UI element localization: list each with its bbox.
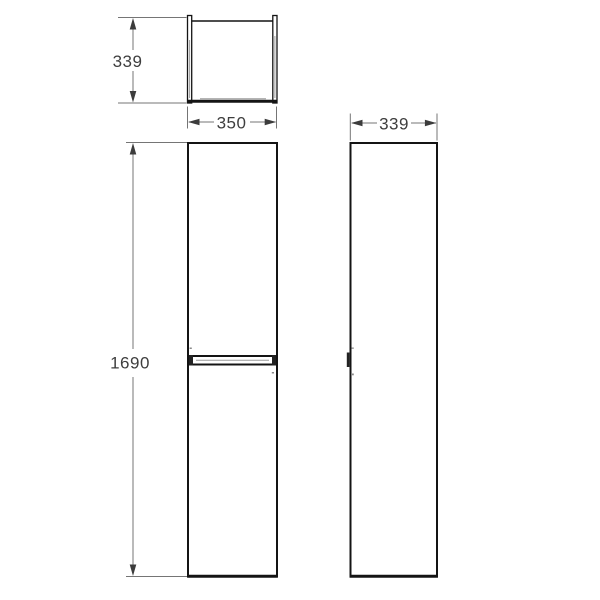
front-view-groove-cap-left xyxy=(189,355,193,366)
dim-width: 350 xyxy=(188,107,277,133)
side-view-handle-profile xyxy=(347,353,350,368)
drawing-page: 339 350 1690 xyxy=(0,0,600,600)
side-view-hinge-mark-upper xyxy=(352,348,354,349)
dim-label-top-depth: 339 xyxy=(113,52,143,71)
dim-label-front-height: 1690 xyxy=(110,354,150,373)
dim-height: 1690 xyxy=(110,143,187,577)
side-view xyxy=(347,143,438,577)
arrow-up-icon xyxy=(130,18,137,30)
front-view-hinge-mark-upper xyxy=(190,348,192,350)
arrow-down-icon xyxy=(130,91,137,103)
front-view xyxy=(187,143,277,577)
dim-top-depth: 339 xyxy=(113,18,187,104)
arrow-up-icon xyxy=(130,143,137,155)
side-view-body xyxy=(351,143,438,577)
side-view-hinge-mark-lower xyxy=(352,374,354,376)
front-view-groove-cap-right xyxy=(272,355,276,366)
arrow-right-icon xyxy=(425,120,437,127)
top-view xyxy=(187,16,277,104)
front-view-hinge-mark-lower xyxy=(272,372,274,374)
dim-label-side-depth: 339 xyxy=(379,115,409,134)
arrow-left-icon xyxy=(351,120,363,127)
technical-drawing-canvas: 339 350 1690 xyxy=(0,0,600,600)
arrow-left-icon xyxy=(188,119,200,126)
dim-side-depth: 339 xyxy=(350,114,437,141)
arrow-down-icon xyxy=(130,565,137,577)
arrow-right-icon xyxy=(265,119,277,126)
dim-label-front-width: 350 xyxy=(217,114,247,133)
